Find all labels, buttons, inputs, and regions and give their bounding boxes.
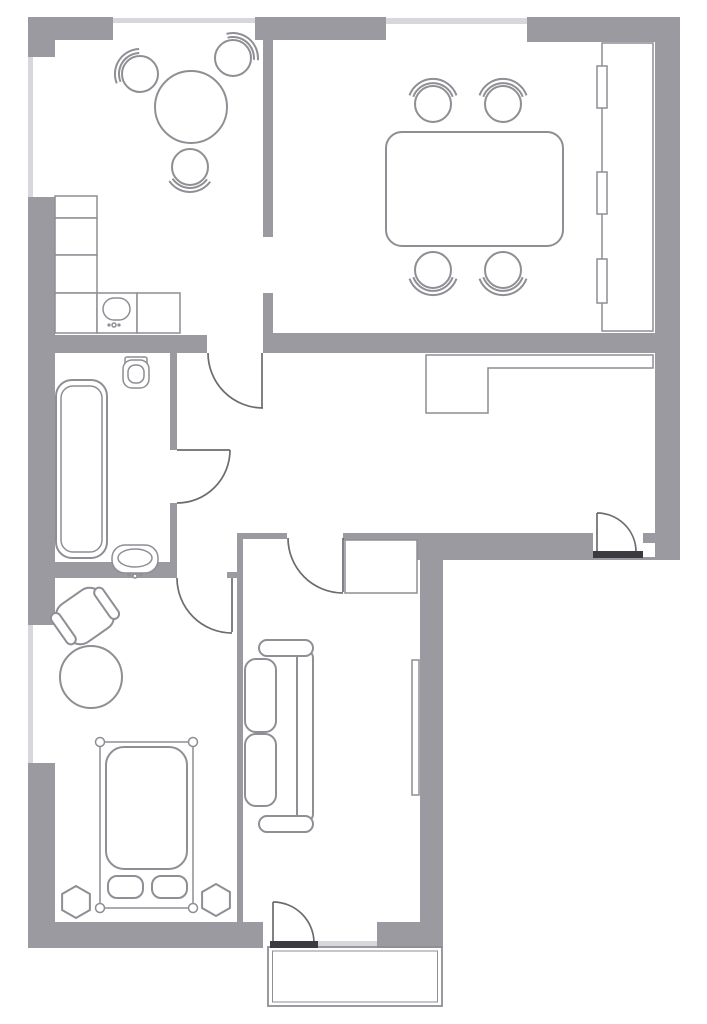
bed-post xyxy=(96,904,105,913)
wall-segment xyxy=(170,353,177,450)
wall-segment xyxy=(417,533,593,560)
window-left-bedroom xyxy=(28,625,33,763)
chair-seat xyxy=(215,40,251,76)
bathtub-inner xyxy=(61,386,102,552)
wall-segment xyxy=(28,197,55,625)
wall-segment xyxy=(170,503,177,562)
sofa-cushion xyxy=(245,659,276,732)
dining-table xyxy=(386,132,563,246)
wall-segment xyxy=(28,17,113,40)
wall-segment xyxy=(28,763,55,948)
pillow xyxy=(152,876,187,898)
hexagon-bedside-table xyxy=(62,886,90,918)
chair-seat xyxy=(415,86,451,122)
pillow xyxy=(108,876,143,898)
round-side-table xyxy=(60,646,122,708)
wall-segment xyxy=(255,17,386,40)
window-bottom-living xyxy=(318,941,377,947)
wall-segment xyxy=(227,572,237,578)
unit-handle xyxy=(597,172,607,214)
bed-post xyxy=(189,738,198,747)
wall-segment xyxy=(28,335,207,353)
floor-plan-page xyxy=(0,0,707,1024)
window-left-kitchen xyxy=(28,57,33,197)
faucet-dot xyxy=(118,324,120,326)
wall-segment xyxy=(655,17,680,560)
sofa-back xyxy=(297,650,313,822)
faucet-dot xyxy=(112,323,116,327)
wall-segment xyxy=(237,538,243,922)
round-table xyxy=(155,71,227,143)
wall-segment xyxy=(263,293,273,353)
wall-segment xyxy=(263,38,273,237)
unit-handle xyxy=(597,66,607,108)
tv-panel xyxy=(412,660,419,795)
sofa-armrest xyxy=(259,816,313,832)
wall-segment xyxy=(263,333,655,353)
chair-seat xyxy=(415,252,451,288)
double-bed xyxy=(96,738,198,913)
wall-segment xyxy=(28,922,263,948)
toilet xyxy=(123,357,149,388)
wall-segment xyxy=(343,533,420,540)
chair-seat xyxy=(122,56,158,92)
faucet-dot xyxy=(108,324,110,326)
wall-segment xyxy=(377,922,443,948)
bed-post xyxy=(189,904,198,913)
floor-plan-canvas xyxy=(0,0,707,1024)
chair-seat xyxy=(485,86,521,122)
balcony-threshold xyxy=(270,941,318,948)
kitchen-sink xyxy=(103,298,130,320)
wall-segment xyxy=(237,533,287,539)
chair-seat xyxy=(172,149,208,185)
mattress xyxy=(106,747,187,869)
faucet-dot xyxy=(128,574,130,576)
faucet-dot xyxy=(140,574,142,576)
entrance-threshold xyxy=(593,551,643,558)
bed-post xyxy=(96,738,105,747)
wall-segment xyxy=(643,533,657,543)
built-in-unit xyxy=(597,43,653,331)
hexagon-bedside-table xyxy=(202,884,230,916)
window-top-dining xyxy=(386,18,527,24)
wardrobe xyxy=(345,540,417,593)
wall-segment xyxy=(420,542,443,922)
window-top-kitchen xyxy=(113,18,255,23)
wall-segment xyxy=(28,40,55,57)
chair-seat xyxy=(485,252,521,288)
faucet-dot xyxy=(133,574,137,578)
sofa-cushion xyxy=(245,734,276,806)
unit-handle xyxy=(597,259,607,303)
sofa-armrest xyxy=(259,640,313,656)
